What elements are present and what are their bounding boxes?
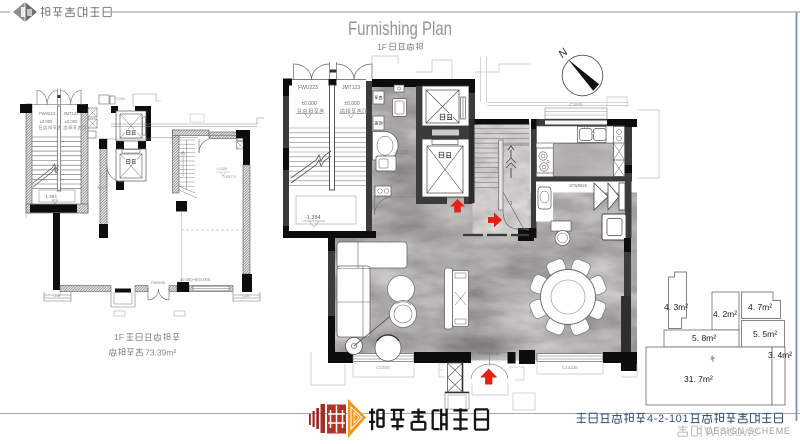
svg-text:C1423b: C1423b [562, 365, 578, 370]
svg-text:1FW0826: 1FW0826 [569, 183, 588, 188]
svg-text:4. 2m²: 4. 2m² [713, 309, 737, 319]
svg-text:JMT123: JMT123 [63, 111, 79, 116]
svg-text:4. 3m²: 4. 3m² [664, 302, 688, 312]
svg-text:JMT123: JMT123 [342, 85, 360, 91]
svg-text:4-2-101: 4-2-101 [647, 413, 689, 425]
svg-text:3. 4m²: 3. 4m² [768, 350, 792, 360]
svg-text:±0.000: ±0.000 [40, 119, 53, 124]
svg-text:TURFCX: TURFCX [222, 175, 236, 179]
svg-text:FDW0904b: FDW0904b [478, 351, 500, 356]
svg-text:±0.000~504.000: ±0.000~504.000 [180, 277, 211, 282]
svg-text:5. 5m²: 5. 5m² [753, 329, 777, 339]
svg-text:FWU223: FWU223 [298, 85, 318, 91]
svg-text:C1936: C1936 [376, 365, 390, 370]
svg-text:C1K: C1K [243, 294, 251, 298]
svg-text:1F: 1F [377, 42, 387, 52]
svg-text:±0.000: ±0.000 [301, 101, 316, 107]
svg-text:31. 7m²: 31. 7m² [684, 374, 713, 384]
svg-text:5. 8m²: 5. 8m² [692, 333, 716, 343]
svg-text:-1.384: -1.384 [44, 194, 57, 199]
svg-text:1F: 1F [114, 332, 124, 342]
svg-text:N: N [556, 46, 570, 60]
svg-text:C1845: C1845 [569, 102, 583, 107]
svg-text:Furnishing Plan: Furnishing Plan [348, 18, 452, 40]
svg-text:Windows: Windows [704, 424, 759, 439]
svg-text:4. 7m²: 4. 7m² [748, 302, 772, 312]
svg-text:73.39m²: 73.39m² [145, 348, 176, 358]
svg-text:-1.384: -1.384 [305, 215, 321, 221]
svg-text:C0B3: C0B3 [116, 97, 125, 101]
svg-text:±0.000: ±0.000 [344, 101, 359, 107]
svg-text:-0.020: -0.020 [216, 166, 228, 171]
svg-text:1: 1 [510, 201, 513, 207]
svg-text:±0.000: ±0.000 [65, 119, 78, 124]
svg-text:FW0223: FW0223 [39, 111, 55, 116]
svg-text:W0CX: W0CX [97, 186, 108, 190]
svg-text:FM0936: FM0936 [151, 281, 165, 285]
svg-text:-0.020: -0.020 [394, 150, 408, 156]
